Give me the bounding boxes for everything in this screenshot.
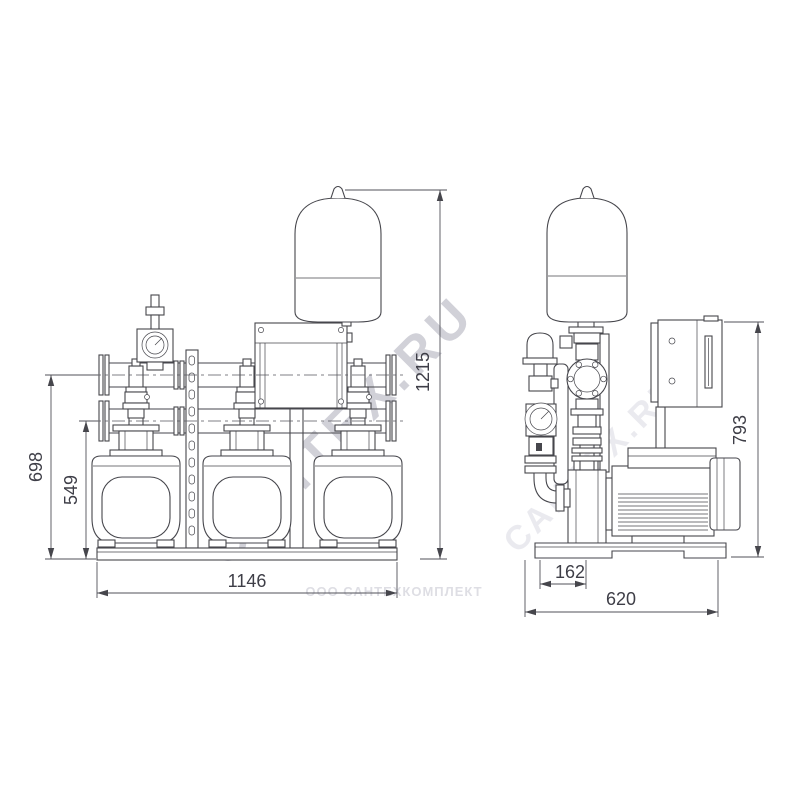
dim-label-1215: 1215: [413, 352, 433, 392]
pipe-flange-pair: [180, 407, 184, 435]
tank-nipple: [331, 187, 345, 199]
technical-drawing: САНТЕХ.RU САНТЕХ.RU ООО САНТЕХКОМПЛЕКТ: [0, 0, 800, 800]
motor-body: [612, 466, 714, 536]
dim-label-549: 549: [61, 475, 81, 505]
cabinet-top-nub: [704, 316, 718, 321]
pressure-gauge-front: [137, 295, 173, 370]
cabinet-screw: [338, 327, 343, 332]
tank-nipple-side: [580, 187, 594, 199]
control-cabinet-side: [651, 316, 722, 407]
cabinet-screw: [258, 399, 263, 404]
dim-front-width: 1146: [97, 562, 397, 598]
cabinet-screw: [669, 378, 675, 384]
motor-side: [612, 448, 740, 544]
dim-label-698: 698: [26, 452, 46, 482]
cabinet-screw: [258, 327, 263, 332]
dim-side-offset: 162: [540, 560, 586, 589]
dim-label-620: 620: [606, 589, 636, 609]
cabinet-pillar-side: [656, 407, 665, 450]
cabinet-screw: [669, 338, 675, 344]
watermark-bottom: ООО САНТЕХКОМПЛЕКТ: [305, 584, 482, 599]
cabinet-gland: [347, 333, 352, 342]
cabinet-pillar: [290, 408, 303, 548]
fan-cover-end: [710, 458, 740, 530]
control-cabinet-front: [255, 323, 352, 408]
dim-side-depth: 620: [525, 560, 718, 617]
diaphragm-tank-side: [547, 187, 627, 323]
pressure-sensor-cap: [527, 333, 553, 358]
dim-front-height-manifold: 698: [26, 375, 98, 559]
diaphragm-tank-front: [295, 187, 381, 327]
support-strut: [186, 350, 198, 548]
dim-label-1146: 1146: [228, 571, 267, 591]
side-base-frame: [535, 543, 726, 558]
drawing-page: САНТЕХ.RU САНТЕХ.RU ООО САНТЕХКОМПЛЕКТ: [0, 0, 800, 800]
dim-label-793: 793: [730, 415, 750, 445]
cabinet-screw: [338, 399, 343, 404]
pipe-flange-pair: [180, 361, 184, 389]
front-base-frame: [97, 548, 397, 560]
dim-label-162: 162: [555, 562, 585, 582]
terminal-box: [628, 448, 716, 468]
